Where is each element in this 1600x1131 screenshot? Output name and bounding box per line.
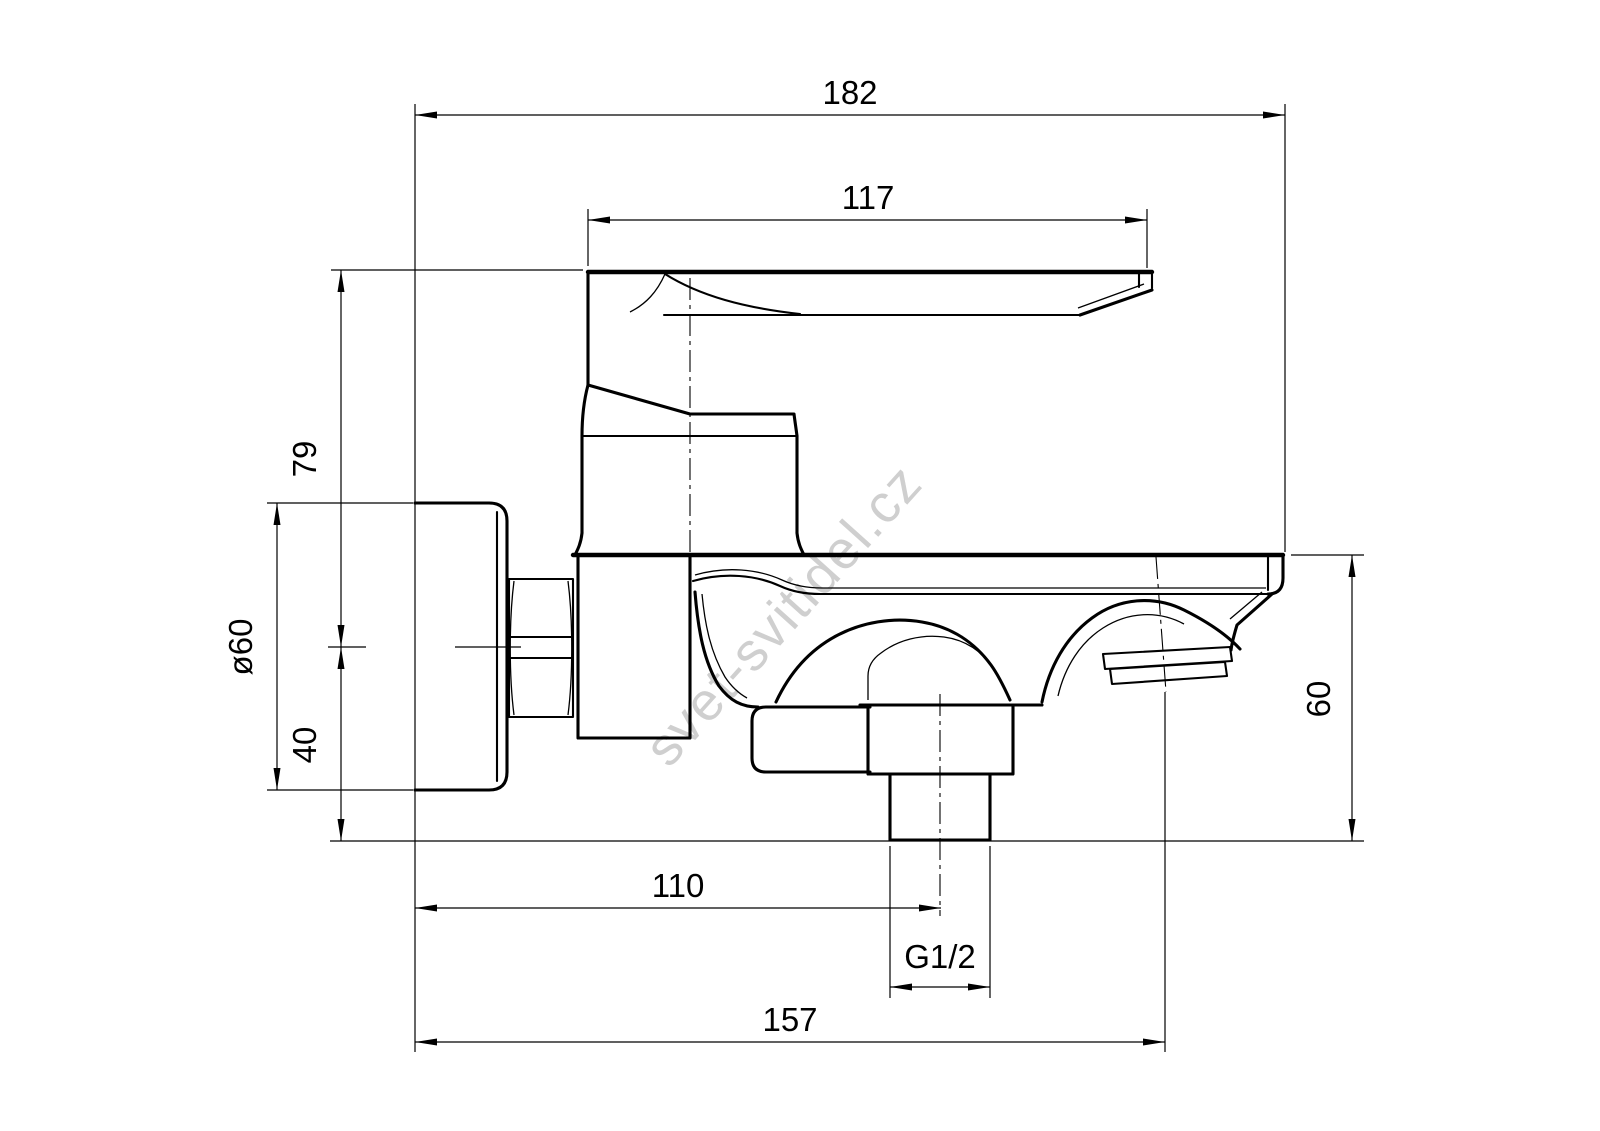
dim-label-thread-size: G1/2 [904, 938, 976, 975]
shower-outlet-pipe [860, 705, 1042, 840]
dimension-handle-length: 117 [588, 179, 1147, 268]
dim-label-overall-depth: 182 [822, 74, 877, 111]
dim-label-axis-to-outlet: 40 [286, 727, 323, 764]
dim-label-height-above-axis: 79 [286, 441, 323, 478]
dimension-wall-to-spout-outlet: 157 [415, 692, 1165, 1052]
mounting-nut [509, 579, 573, 717]
mixer-body [573, 272, 1283, 738]
dim-label-flange-diameter: ø60 [222, 619, 259, 676]
dimension-overall-depth: 182 [415, 74, 1285, 552]
dimension-axis-to-outlet: 40 [286, 647, 345, 841]
watermark-text: svet-svitidel.cz [633, 453, 934, 778]
dimension-height-above-axis: 79 [286, 270, 583, 647]
dimension-spout-drop: 60 [1291, 555, 1364, 841]
dim-label-handle-length: 117 [842, 179, 895, 216]
aerator [1103, 647, 1232, 684]
faucet-outline [415, 272, 1283, 916]
faucet-dimension-drawing: svet-svitidel.cz [0, 0, 1600, 1131]
dim-label-wall-to-spout-outlet: 157 [762, 1001, 817, 1038]
dim-label-wall-to-pipe-center: 110 [652, 867, 705, 904]
dimension-wall-to-pipe-center: 110 [415, 867, 941, 912]
dim-label-spout-drop: 60 [1300, 681, 1337, 718]
technical-drawing-canvas: svet-svitidel.cz [0, 0, 1600, 1131]
diverter-knob [752, 707, 870, 772]
handle-lever [588, 272, 1152, 315]
